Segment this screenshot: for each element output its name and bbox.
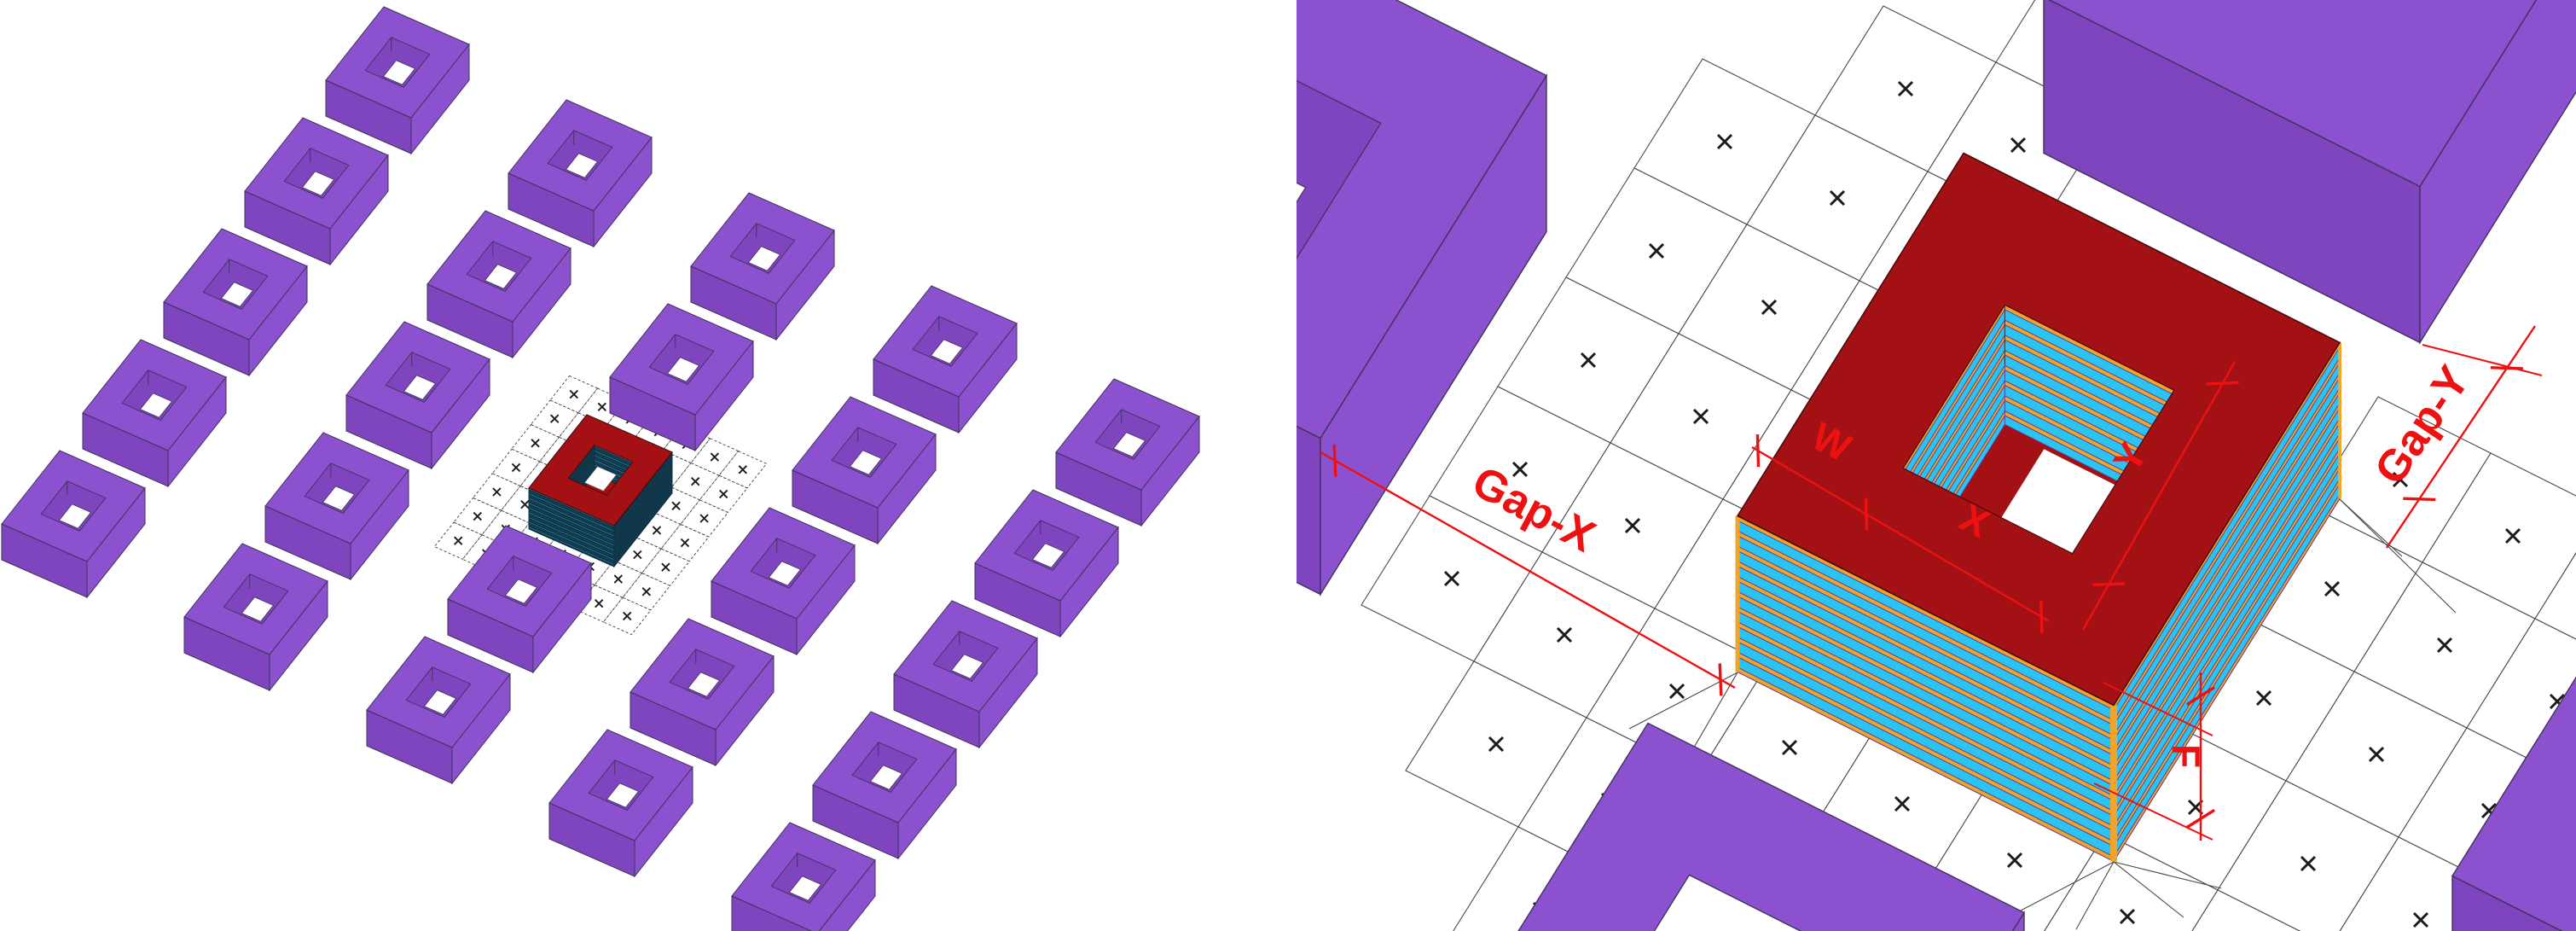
hollow-box (873, 286, 1017, 433)
hollow-box (83, 340, 226, 486)
hollow-box (1056, 379, 1199, 526)
hollow-box (346, 322, 490, 468)
hollow-box (549, 730, 693, 876)
left-panel-array-overview (0, 0, 1279, 931)
hollow-box (245, 118, 388, 265)
hollow-box (265, 433, 409, 579)
hollow-box (792, 397, 936, 544)
hollow-box (184, 544, 328, 690)
hollow-box (2, 451, 145, 597)
right-panel-detail-view: Gap-X W X Y Gap-Y F (1297, 0, 2576, 931)
hollow-box (367, 637, 510, 783)
hollow-box (711, 508, 855, 655)
hollow-box (326, 7, 469, 154)
hollow-box (427, 211, 571, 358)
hollow-box (164, 229, 307, 375)
hollow-box (894, 601, 1037, 748)
hollow-box (691, 193, 834, 340)
hollow-box (508, 100, 652, 247)
label-f: F (2164, 744, 2208, 768)
hollow-box (630, 619, 774, 765)
hollow-box (813, 712, 956, 858)
hollow-box (975, 490, 1118, 637)
